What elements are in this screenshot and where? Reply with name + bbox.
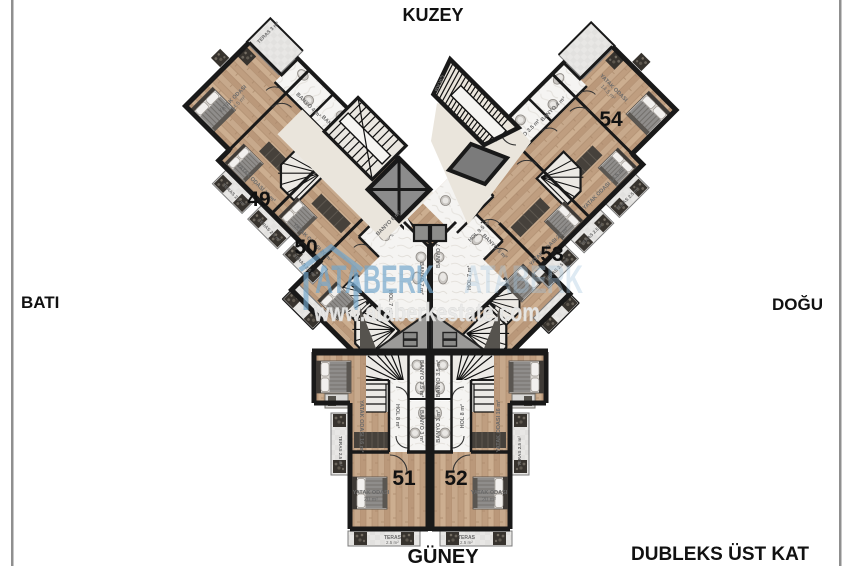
- svg-text:DOĞU: DOĞU: [772, 295, 823, 314]
- svg-text:2.5 m²: 2.5 m²: [386, 540, 399, 545]
- svg-text:BATI: BATI: [21, 293, 59, 312]
- svg-text:50: 50: [294, 236, 317, 259]
- svg-text:52: 52: [444, 467, 467, 490]
- svg-text:YATAK ODASI: YATAK ODASI: [353, 490, 390, 496]
- svg-text:BANYO 3.5 m²: BANYO 3.5 m²: [435, 360, 442, 397]
- svg-text:ATABERK: ATABERK: [464, 258, 583, 302]
- svg-text:TERAS 2.5 m²: TERAS 2.5 m²: [517, 436, 522, 467]
- svg-text:BANYO 3 m²: BANYO 3 m²: [435, 410, 442, 443]
- svg-text:YATAK ODASI: YATAK ODASI: [471, 490, 508, 496]
- svg-text:YATAK ODASI 16 m²: YATAK ODASI 16 m²: [358, 400, 365, 453]
- svg-text:BANYO 3 m²: BANYO 3 m²: [418, 410, 425, 443]
- svg-text:www.ataberkestate.com: www.ataberkestate.com: [313, 297, 540, 327]
- svg-text:54: 54: [599, 108, 623, 131]
- svg-text:YATAK ODASI 16 m²: YATAK ODASI 16 m²: [495, 400, 502, 453]
- svg-text:HOL 8 m²: HOL 8 m²: [459, 404, 466, 429]
- svg-text:BANYO 3.5 m²: BANYO 3.5 m²: [418, 360, 425, 397]
- svg-text:49: 49: [247, 188, 270, 211]
- svg-text:ATABERK: ATABERK: [315, 258, 434, 302]
- svg-text:HOL 8 m²: HOL 8 m²: [394, 404, 401, 429]
- svg-text:51: 51: [392, 467, 416, 490]
- svg-text:KUZEY: KUZEY: [402, 5, 463, 25]
- svg-text:DUBLEKS ÜST KAT: DUBLEKS ÜST KAT: [631, 544, 809, 565]
- svg-text:2.5 m²: 2.5 m²: [460, 540, 473, 545]
- svg-text:GÜNEY: GÜNEY: [407, 545, 479, 566]
- svg-text:TERAS 2.5 m²: TERAS 2.5 m²: [338, 436, 343, 467]
- svg-text:20 m²: 20 m²: [364, 497, 378, 503]
- svg-text:20 m²: 20 m²: [482, 497, 496, 503]
